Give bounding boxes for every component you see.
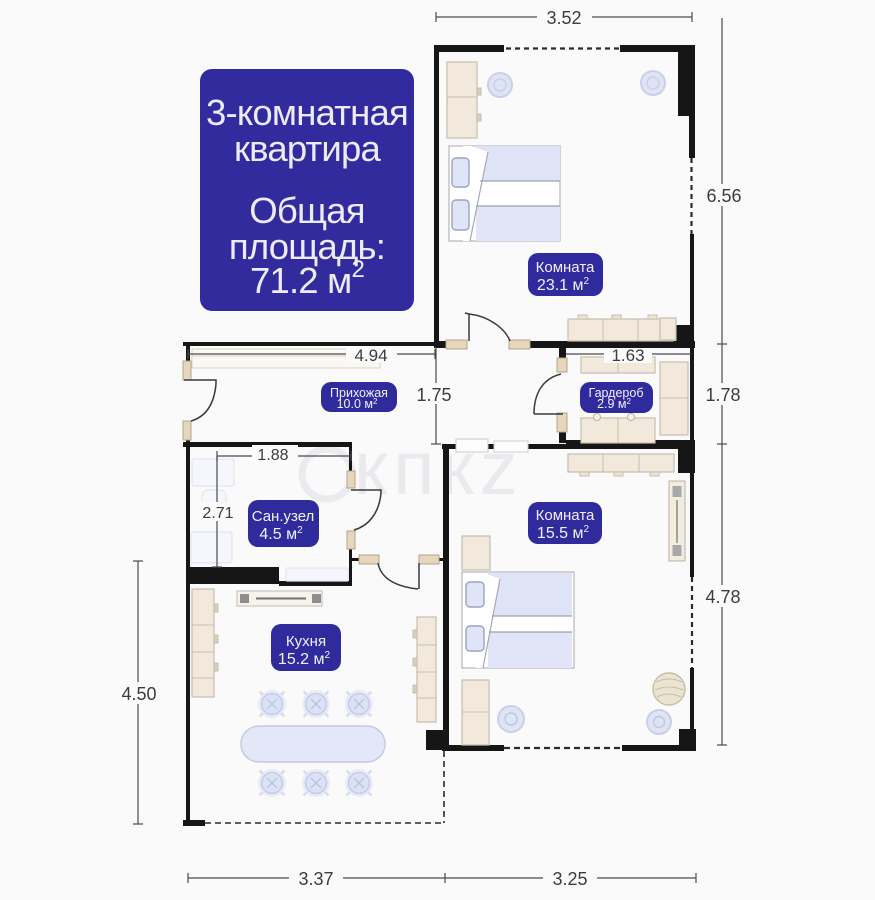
svg-text:10.0 м2: 10.0 м2 <box>337 397 378 411</box>
svg-text:3.25: 3.25 <box>552 869 587 889</box>
svg-text:15.2 м2: 15.2 м2 <box>278 650 331 668</box>
svg-text:1.63: 1.63 <box>611 346 644 365</box>
svg-text:71.2 м2: 71.2 м2 <box>250 256 364 301</box>
svg-text:кпкz: кпкz <box>354 426 524 511</box>
svg-text:2.9 м2: 2.9 м2 <box>597 397 631 411</box>
svg-text:3.52: 3.52 <box>546 8 581 28</box>
svg-text:Комната: Комната <box>536 507 595 524</box>
svg-text:6.56: 6.56 <box>706 186 741 206</box>
svg-text:15.5 м2: 15.5 м2 <box>537 524 590 542</box>
svg-text:Кухня: Кухня <box>286 633 326 650</box>
svg-text:3-комнатная: 3-комнатная <box>206 92 408 133</box>
svg-text:1.75: 1.75 <box>416 385 451 405</box>
svg-text:квартира: квартира <box>234 128 382 169</box>
svg-text:3.37: 3.37 <box>298 869 333 889</box>
svg-text:4.50: 4.50 <box>121 684 156 704</box>
svg-text:2.71: 2.71 <box>202 505 233 522</box>
svg-text:1.88: 1.88 <box>257 447 288 464</box>
svg-text:Комната: Комната <box>536 259 595 276</box>
svg-text:4.5 м2: 4.5 м2 <box>259 525 303 543</box>
svg-text:Общая: Общая <box>249 190 364 231</box>
svg-text:1.78: 1.78 <box>705 385 740 405</box>
svg-text:Сан.узел: Сан.узел <box>252 508 315 525</box>
svg-text:4.78: 4.78 <box>705 587 740 607</box>
svg-text:23.1 м2: 23.1 м2 <box>537 276 590 294</box>
svg-text:4.94: 4.94 <box>354 346 387 365</box>
